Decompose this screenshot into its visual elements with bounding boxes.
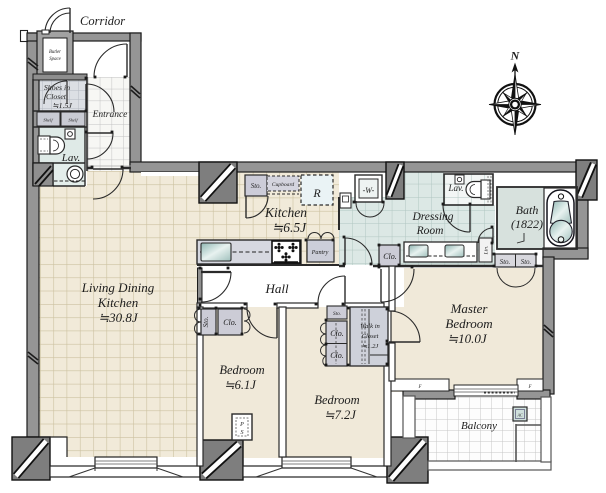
svg-text:N: N (510, 49, 521, 63)
svg-text:Shoes in: Shoes in (44, 83, 70, 92)
svg-text:Walk in: Walk in (360, 323, 380, 330)
svg-text:Kitchen: Kitchen (97, 295, 138, 310)
svg-text:Lav.: Lav. (61, 152, 80, 164)
svg-text:AC: AC (516, 413, 522, 418)
svg-text:(1822): (1822) (511, 217, 543, 231)
svg-text:Corridor: Corridor (80, 14, 125, 28)
svg-text:Master: Master (450, 301, 489, 316)
svg-text:Bedroom: Bedroom (219, 363, 264, 377)
svg-text:Space: Space (49, 57, 61, 62)
svg-text:Clo.: Clo. (330, 351, 344, 360)
svg-text:Balcony: Balcony (461, 420, 497, 432)
svg-text:Pantry: Pantry (311, 249, 329, 256)
svg-text:Kitchen: Kitchen (264, 205, 307, 220)
svg-text:R: R (312, 186, 321, 200)
svg-text:≒1.2J: ≒1.2J (362, 343, 380, 350)
svg-text:-W-: -W- (363, 186, 375, 195)
svg-text:Room: Room (416, 225, 444, 237)
svg-text:Lav.: Lav. (447, 183, 463, 193)
svg-text:Sto.: Sto. (500, 259, 511, 266)
svg-text:Living Dining: Living Dining (81, 280, 155, 295)
svg-text:≒1.5J: ≒1.5J (52, 101, 72, 110)
svg-text:Bath: Bath (516, 203, 539, 217)
svg-text:≒7.2J: ≒7.2J (324, 408, 357, 422)
svg-text:Bedroom: Bedroom (314, 393, 359, 407)
svg-text:≒6.1J: ≒6.1J (224, 378, 257, 392)
svg-text:P: P (239, 422, 244, 428)
svg-text:Sto.: Sto. (202, 316, 210, 327)
svg-text:Shelf: Shelf (68, 118, 78, 123)
svg-text:Hall: Hall (264, 281, 289, 296)
svg-text:Closet: Closet (362, 333, 379, 340)
svg-text:Clo.: Clo. (330, 329, 344, 338)
svg-text:Clo.: Clo. (383, 252, 397, 261)
svg-text:S: S (241, 430, 244, 436)
svg-text:≒10.0J: ≒10.0J (447, 331, 488, 346)
svg-text:≒30.8J: ≒30.8J (98, 310, 139, 325)
svg-text:Clo.: Clo. (223, 318, 237, 327)
svg-text:Cupboard: Cupboard (272, 182, 295, 188)
svg-text:Bedroom: Bedroom (445, 316, 492, 331)
svg-text:Entrance: Entrance (92, 110, 128, 120)
svg-text:Butler: Butler (49, 50, 61, 55)
svg-text:Sto.: Sto. (251, 183, 262, 190)
svg-text:Lin.: Lin. (484, 246, 490, 256)
svg-text:≒6.5J: ≒6.5J (272, 220, 307, 235)
svg-text:Sto.: Sto. (333, 311, 341, 317)
svg-text:Sto.: Sto. (521, 259, 532, 266)
svg-text:Shelf: Shelf (43, 118, 53, 123)
svg-text:Closet: Closet (46, 92, 67, 101)
svg-text:Dressing: Dressing (411, 211, 453, 223)
